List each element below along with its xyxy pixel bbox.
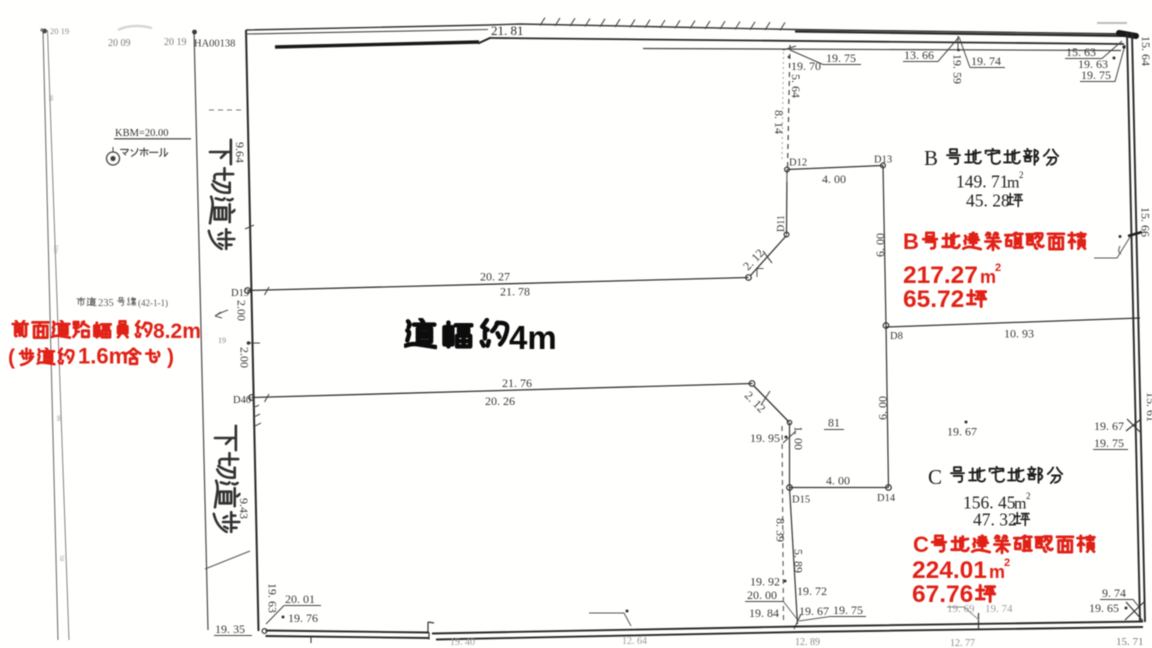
svg-text:m: m — [980, 267, 996, 287]
svg-text:19. 67: 19. 67 — [947, 425, 977, 439]
svg-text:(: ( — [8, 346, 15, 369]
svg-text:19. 75: 19. 75 — [1094, 436, 1124, 450]
svg-text:65.72: 65.72 — [903, 286, 964, 313]
svg-text:C: C — [913, 532, 929, 557]
svg-text:2.00: 2.00 — [238, 347, 252, 368]
svg-text:20. 26: 20. 26 — [485, 394, 515, 408]
svg-text:10. 93: 10. 93 — [1004, 327, 1034, 341]
svg-text:9. 74: 9. 74 — [1102, 586, 1126, 600]
svg-text:21. 76: 21. 76 — [502, 376, 532, 390]
svg-text:98: 98 — [55, 415, 61, 421]
svg-text:20. 01: 20. 01 — [285, 592, 315, 606]
svg-text:6. 00: 6. 00 — [876, 396, 890, 420]
svg-text:19. 63: 19. 63 — [266, 583, 280, 613]
svg-text:D15: D15 — [792, 495, 810, 506]
svg-text:8.2m: 8.2m — [153, 320, 201, 343]
svg-text:C: C — [928, 465, 942, 489]
svg-text:4. 00: 4. 00 — [822, 172, 846, 186]
svg-text:45. 28: 45. 28 — [966, 191, 1010, 211]
svg-text:D11: D11 — [776, 215, 787, 232]
svg-text:98: 98 — [47, 95, 53, 101]
svg-text:67.76: 67.76 — [912, 581, 973, 608]
svg-text:1.6m: 1.6m — [78, 344, 128, 369]
svg-text:D19: D19 — [231, 288, 249, 299]
svg-text:19. 72: 19. 72 — [797, 584, 827, 598]
svg-text:19. 95: 19. 95 — [750, 431, 780, 445]
svg-text:2: 2 — [995, 262, 1001, 274]
svg-text:12. 89: 12. 89 — [795, 637, 820, 648]
svg-text:15. 64: 15. 64 — [1139, 36, 1152, 66]
svg-text:19: 19 — [218, 336, 226, 345]
svg-text:19. 75: 19. 75 — [1081, 68, 1111, 82]
svg-text:13. 66: 13. 66 — [904, 48, 934, 62]
svg-text:(42-1-1): (42-1-1) — [138, 298, 168, 308]
svg-text:50c: 50c — [52, 245, 58, 254]
svg-text:2: 2 — [1026, 491, 1031, 501]
svg-text:15. 61: 15. 61 — [1144, 392, 1152, 422]
svg-text:19. 40: 19. 40 — [450, 637, 475, 648]
svg-text:81: 81 — [828, 416, 840, 430]
svg-text:1. 00: 1. 00 — [792, 426, 806, 450]
svg-text:20 09: 20 09 — [108, 38, 131, 49]
svg-text:5. 89: 5. 89 — [792, 549, 806, 573]
svg-text:2: 2 — [1004, 557, 1010, 569]
svg-text:19. 75: 19. 75 — [826, 51, 856, 65]
svg-text:20 19: 20 19 — [164, 37, 187, 48]
svg-text:19. 92: 19. 92 — [750, 575, 780, 589]
svg-text:6. 00: 6. 00 — [873, 233, 887, 257]
svg-text:19. 74: 19. 74 — [985, 603, 1013, 615]
svg-text:19. 67: 19. 67 — [799, 604, 829, 618]
svg-text:4. 00: 4. 00 — [826, 474, 850, 488]
svg-text:47. 32: 47. 32 — [973, 510, 1017, 530]
svg-text:235: 235 — [98, 298, 114, 309]
svg-text:217.27: 217.27 — [903, 262, 978, 289]
svg-text:19. 76: 19. 76 — [288, 611, 318, 625]
svg-text:15. 71: 15. 71 — [1116, 636, 1144, 648]
svg-text:19. 65: 19. 65 — [1089, 601, 1119, 615]
svg-text:9.43: 9.43 — [237, 498, 251, 519]
svg-text:8. 14: 8. 14 — [772, 110, 786, 134]
svg-text:20 19: 20 19 — [50, 26, 69, 36]
svg-text:4m: 4m — [509, 319, 557, 356]
svg-text:19. 74: 19. 74 — [971, 54, 1001, 68]
svg-text:B: B — [924, 146, 938, 170]
svg-text:9.64: 9.64 — [233, 142, 247, 163]
svg-text:8. 39: 8. 39 — [774, 518, 788, 542]
svg-text:19. 35: 19. 35 — [215, 622, 245, 636]
svg-text:KBM=20.00: KBM=20.00 — [115, 128, 168, 139]
svg-text:2: 2 — [1019, 170, 1024, 180]
svg-text:D40: D40 — [233, 395, 251, 406]
svg-text:15. 66: 15. 66 — [1139, 207, 1152, 237]
svg-text:HA00138: HA00138 — [194, 39, 235, 50]
svg-text:B: B — [903, 229, 919, 254]
svg-text:21. 81: 21. 81 — [491, 23, 524, 38]
svg-text:224.01: 224.01 — [912, 557, 987, 584]
svg-text:12. 77: 12. 77 — [950, 638, 975, 648]
svg-text:5. 64: 5. 64 — [789, 74, 803, 98]
svg-text:2.00: 2.00 — [235, 300, 249, 321]
svg-text:50: 50 — [58, 555, 64, 561]
svg-text:D14: D14 — [877, 493, 896, 504]
svg-text:m: m — [989, 562, 1005, 582]
svg-text:19. 67: 19. 67 — [1094, 419, 1124, 433]
svg-text:20. 27: 20. 27 — [480, 270, 510, 284]
svg-text:20. 00: 20. 00 — [747, 588, 777, 602]
svg-text:21. 78: 21. 78 — [500, 285, 530, 299]
svg-text:D8: D8 — [890, 331, 903, 342]
svg-text:): ) — [167, 346, 174, 369]
svg-text:149. 71: 149. 71 — [956, 172, 1009, 192]
svg-text:D12: D12 — [789, 158, 807, 169]
svg-text:D13: D13 — [874, 155, 892, 166]
svg-text:19. 59: 19. 59 — [951, 54, 965, 84]
svg-text:19. 84: 19. 84 — [749, 606, 779, 620]
svg-text:12. 64: 12. 64 — [622, 636, 647, 647]
svg-text:19. 75: 19. 75 — [833, 603, 863, 617]
